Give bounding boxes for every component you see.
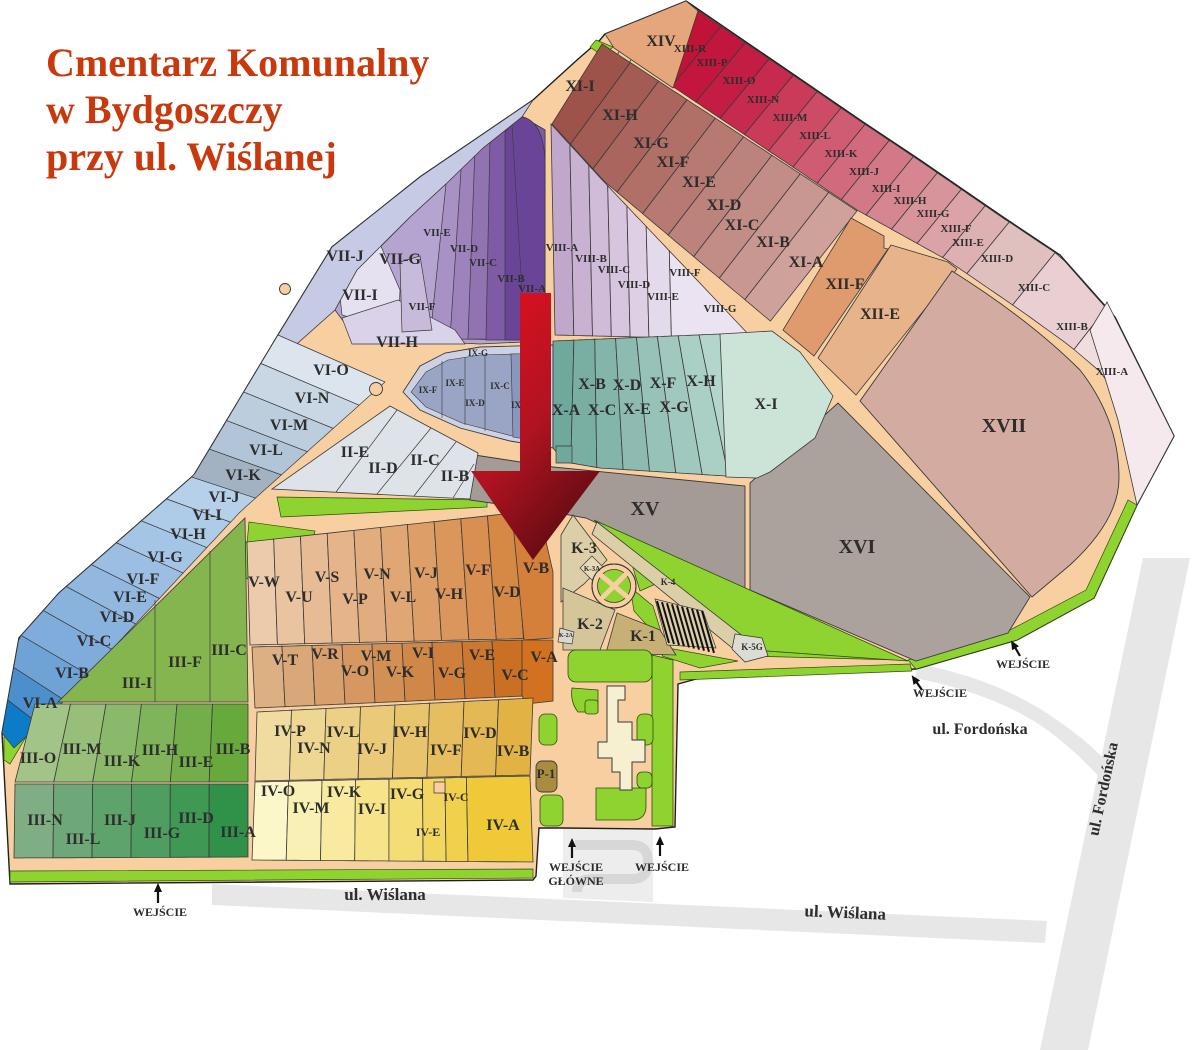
svg-text:XIII-B: XIII-B [1056, 321, 1088, 333]
svg-text:X-G: X-G [659, 399, 689, 416]
svg-text:w Bydgoszczy: w Bydgoszczy [46, 87, 283, 132]
svg-text:V-N: V-N [363, 566, 391, 583]
svg-text:XIII-P: XIII-P [696, 57, 727, 69]
svg-text:III-H: III-H [142, 742, 179, 759]
svg-text:VII-C: VII-C [469, 257, 497, 269]
svg-text:IX: IX [511, 400, 522, 410]
svg-text:XIII-H: XIII-H [893, 195, 926, 207]
svg-text:XVI: XVI [839, 536, 876, 558]
svg-text:III-N: III-N [27, 812, 63, 829]
svg-text:VI-M: VI-M [270, 417, 308, 434]
svg-text:III-L: III-L [66, 831, 101, 848]
svg-text:VI-D: VI-D [100, 609, 135, 626]
svg-text:VI-L: VI-L [249, 442, 283, 459]
svg-text:V-S: V-S [315, 569, 340, 586]
svg-text:VI-E: VI-E [113, 589, 147, 606]
svg-text:X-C: X-C [588, 402, 616, 419]
svg-text:XIII-M: XIII-M [773, 112, 808, 124]
svg-text:WEJŚCIE: WEJŚCIE [996, 657, 1050, 671]
svg-text:VI-N: VI-N [295, 390, 330, 407]
svg-text:VI-I: VI-I [192, 507, 221, 524]
svg-text:XIII-C: XIII-C [1018, 282, 1050, 294]
svg-text:VI-A: VI-A [23, 695, 58, 712]
svg-text:VI-B: VI-B [55, 665, 89, 682]
svg-text:GŁÓWNE: GŁÓWNE [548, 874, 603, 888]
svg-text:III-E: III-E [179, 754, 214, 771]
svg-text:VIII-A: VIII-A [546, 242, 578, 254]
svg-text:XIII-A: XIII-A [1096, 366, 1128, 378]
svg-text:VI-C: VI-C [77, 633, 112, 650]
svg-text:III-G: III-G [144, 825, 181, 842]
svg-text:IV-J: IV-J [357, 741, 387, 758]
svg-text:IV-I: IV-I [358, 801, 386, 818]
svg-text:IV-G: IV-G [390, 786, 425, 803]
svg-text:XIII-O: XIII-O [722, 75, 755, 87]
svg-text:XI-B: XI-B [756, 234, 790, 251]
svg-text:XI-H: XI-H [602, 107, 638, 124]
svg-text:K-3A: K-3A [584, 565, 600, 573]
svg-text:WEJŚCIE: WEJŚCIE [133, 905, 187, 919]
svg-text:XIII-J: XIII-J [849, 166, 879, 178]
svg-text:V-C: V-C [501, 667, 528, 684]
svg-text:X-I: X-I [754, 396, 777, 413]
svg-text:VIII-F: VIII-F [669, 267, 700, 279]
svg-text:IX-G: IX-G [468, 348, 488, 358]
svg-text:XI-I: XI-I [565, 78, 594, 95]
svg-text:IV-O: IV-O [261, 783, 295, 800]
svg-text:VII-F: VII-F [409, 301, 436, 313]
svg-text:VIII-E: VIII-E [647, 291, 679, 303]
svg-text:XI-E: XI-E [682, 174, 716, 191]
svg-text:X-E: X-E [623, 401, 651, 418]
svg-text:VI-O: VI-O [313, 362, 349, 379]
svg-text:V-T: V-T [272, 652, 299, 669]
svg-text:III-K: III-K [104, 753, 141, 770]
svg-text:XV: XV [631, 498, 660, 520]
svg-text:III-O: III-O [20, 750, 56, 767]
svg-text:VI-K: VI-K [225, 467, 261, 484]
svg-text:XIII-L: XIII-L [799, 130, 831, 142]
svg-text:II-D: II-D [368, 460, 397, 477]
svg-text:XIII-R: XIII-R [674, 43, 707, 55]
svg-text:V-H: V-H [435, 586, 464, 603]
svg-text:IX-D: IX-D [465, 398, 485, 408]
svg-text:XIII-E: XIII-E [952, 237, 984, 249]
svg-text:XIII-K: XIII-K [824, 148, 857, 160]
svg-text:V-D: V-D [493, 584, 520, 601]
svg-text:WEJŚCIE: WEJŚCIE [635, 860, 689, 874]
svg-text:IV-N: IV-N [297, 740, 331, 757]
svg-text:III-B: III-B [216, 741, 251, 758]
svg-text:V-B: V-B [523, 560, 550, 577]
svg-text:V-E: V-E [469, 647, 495, 664]
svg-text:V-M: V-M [361, 648, 392, 665]
svg-text:K-2: K-2 [577, 616, 603, 633]
svg-text:X-H: X-H [686, 373, 716, 390]
svg-text:IV-K: IV-K [327, 784, 362, 801]
svg-text:IV-M: IV-M [292, 800, 329, 817]
svg-text:IV-F: IV-F [430, 742, 462, 759]
svg-text:V-W: V-W [248, 574, 280, 591]
svg-text:XVII: XVII [982, 415, 1027, 437]
svg-text:IV-H: IV-H [393, 724, 428, 741]
svg-text:VII-H: VII-H [376, 334, 418, 351]
svg-text:X-D: X-D [613, 377, 641, 394]
svg-text:VIII-C: VIII-C [598, 264, 630, 276]
svg-text:II-C: II-C [410, 452, 439, 469]
svg-text:X-F: X-F [650, 375, 677, 392]
svg-text:V-A: V-A [530, 649, 558, 666]
svg-text:III-J: III-J [104, 812, 136, 829]
svg-text:III-I: III-I [122, 675, 152, 692]
svg-text:X-A: X-A [552, 402, 581, 419]
svg-text:XI-D: XI-D [707, 197, 742, 214]
svg-text:VII-A: VII-A [518, 283, 546, 295]
svg-text:K-5G: K-5G [741, 642, 763, 652]
svg-text:X-B: X-B [578, 376, 606, 393]
svg-text:XII-F: XII-F [825, 276, 864, 293]
svg-text:XI-C: XI-C [725, 217, 760, 234]
svg-text:XIII-I: XIII-I [872, 183, 901, 195]
svg-text:XI-G: XI-G [633, 135, 669, 152]
svg-text:V-O: V-O [341, 663, 369, 680]
svg-text:IV-L: IV-L [327, 724, 360, 741]
svg-text:V-J: V-J [414, 565, 438, 582]
svg-text:III-C: III-C [211, 642, 247, 659]
svg-text:V-U: V-U [285, 589, 313, 606]
svg-text:III-M: III-M [62, 741, 101, 758]
svg-text:IV-D: IV-D [463, 725, 496, 742]
svg-text:IV-P: IV-P [274, 723, 306, 740]
svg-text:przy ul. Wiślanej: przy ul. Wiślanej [46, 134, 337, 179]
svg-text:VI-G: VI-G [147, 549, 183, 566]
svg-text:VII-I: VII-I [342, 287, 378, 304]
svg-text:V-G: V-G [438, 665, 467, 682]
svg-text:V-R: V-R [311, 646, 339, 663]
svg-text:VI-J: VI-J [208, 489, 239, 506]
svg-text:V-I: V-I [412, 645, 434, 662]
svg-text:K-4: K-4 [661, 577, 676, 587]
svg-text:XIII-N: XIII-N [747, 94, 779, 106]
svg-text:IV-C: IV-C [443, 790, 468, 804]
svg-text:IX-E: IX-E [445, 378, 464, 388]
svg-text:II-B: II-B [441, 468, 470, 485]
svg-text:XIII-D: XIII-D [981, 253, 1013, 265]
svg-text:K-3: K-3 [571, 540, 597, 557]
svg-text:V-L: V-L [390, 589, 416, 606]
svg-text:IX-F: IX-F [419, 385, 438, 395]
svg-text:ul. Fordońska: ul. Fordońska [932, 721, 1027, 738]
svg-text:III-A: III-A [220, 824, 256, 841]
svg-text:IV-E: IV-E [416, 825, 440, 839]
svg-text:IV-B: IV-B [497, 743, 530, 760]
svg-text:VII-D: VII-D [450, 243, 478, 255]
svg-text:IV-A: IV-A [486, 817, 520, 834]
svg-text:XII-E: XII-E [860, 306, 900, 323]
svg-text:III-F: III-F [168, 654, 202, 671]
svg-text:VI-H: VI-H [170, 526, 206, 543]
svg-text:V-P: V-P [342, 591, 368, 608]
svg-text:ul. Wiślana: ul. Wiślana [804, 901, 887, 924]
svg-text:VIII-D: VIII-D [618, 279, 650, 291]
svg-text:IX-C: IX-C [490, 381, 510, 391]
svg-text:P-1: P-1 [537, 766, 556, 781]
svg-text:XIII-G: XIII-G [916, 208, 949, 220]
svg-text:VII-G: VII-G [379, 251, 421, 268]
svg-text:II-E: II-E [341, 444, 369, 461]
svg-text:VII-E: VII-E [423, 227, 451, 239]
svg-text:XIV: XIV [646, 33, 676, 50]
svg-text:WEJŚCIE: WEJŚCIE [549, 860, 603, 874]
svg-text:V-F: V-F [465, 562, 491, 579]
svg-text:K-2A: K-2A [559, 633, 574, 639]
svg-text:XI-F: XI-F [657, 154, 690, 171]
svg-text:XIII-F: XIII-F [940, 223, 971, 235]
svg-text:XI-A: XI-A [789, 254, 824, 271]
svg-text:III-D: III-D [178, 810, 214, 827]
svg-text:K-1: K-1 [630, 628, 656, 645]
svg-text:ul. Wiślana: ul. Wiślana [344, 885, 426, 904]
svg-text:VI-F: VI-F [127, 571, 160, 588]
svg-text:VII-J: VII-J [326, 248, 363, 265]
svg-text:Cmentarz Komunalny: Cmentarz Komunalny [46, 40, 429, 85]
svg-text:VIII-G: VIII-G [703, 303, 736, 315]
svg-text:V-K: V-K [386, 664, 415, 681]
